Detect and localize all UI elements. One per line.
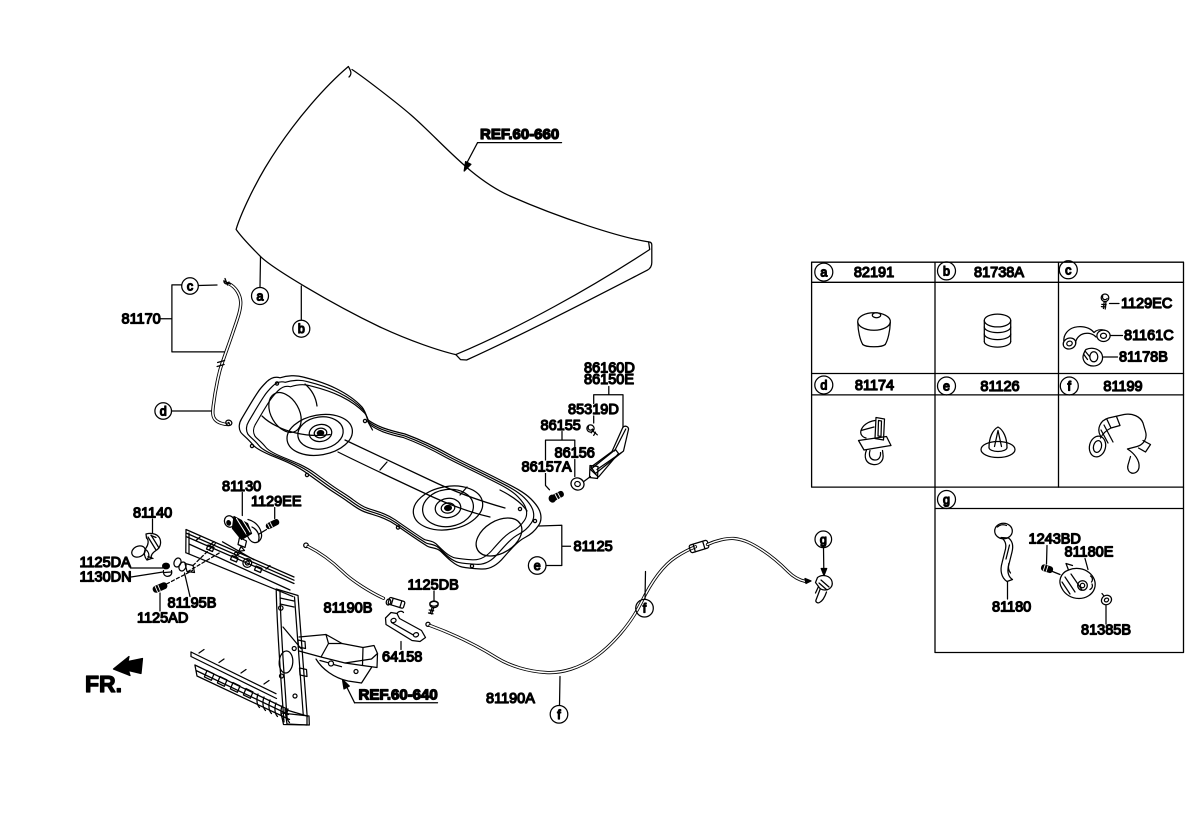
svg-text:81161C: 81161C: [1124, 328, 1174, 344]
svg-text:a: a: [257, 290, 264, 304]
svg-text:1125DB: 1125DB: [408, 578, 459, 594]
svg-text:FR.: FR.: [85, 671, 122, 697]
svg-text:81125: 81125: [574, 539, 613, 555]
svg-text:81180: 81180: [992, 600, 1031, 616]
svg-text:f: f: [1068, 380, 1072, 394]
svg-text:82191: 82191: [854, 265, 894, 281]
svg-text:81385B: 81385B: [1081, 623, 1131, 639]
svg-text:b: b: [298, 322, 305, 336]
svg-text:81199: 81199: [1103, 379, 1142, 395]
svg-text:g: g: [943, 493, 950, 507]
svg-text:1130DN: 1130DN: [80, 570, 132, 586]
svg-text:81190A: 81190A: [486, 691, 535, 707]
svg-text:81738A: 81738A: [974, 265, 1024, 281]
svg-text:64158: 64158: [382, 650, 422, 666]
svg-text:1125AD: 1125AD: [137, 611, 188, 627]
svg-text:REF.60-640: REF.60-640: [359, 687, 438, 704]
svg-text:86155: 86155: [541, 418, 581, 434]
svg-text:f: f: [557, 708, 561, 722]
svg-text:86157A: 86157A: [522, 460, 572, 476]
svg-text:a: a: [820, 266, 827, 280]
svg-text:81126: 81126: [980, 379, 1019, 395]
svg-text:81195B: 81195B: [168, 596, 217, 612]
svg-text:REF.60-660: REF.60-660: [480, 126, 559, 143]
svg-text:85319D: 85319D: [568, 402, 619, 418]
svg-text:1129EE: 1129EE: [251, 494, 302, 510]
svg-text:d: d: [820, 379, 827, 393]
svg-text:1129EC: 1129EC: [1121, 296, 1172, 312]
svg-text:e: e: [534, 559, 541, 573]
svg-text:81130: 81130: [222, 479, 261, 495]
svg-text:81174: 81174: [855, 378, 894, 394]
svg-text:81180E: 81180E: [1065, 545, 1114, 561]
svg-text:86150E: 86150E: [584, 372, 634, 388]
svg-text:81178B: 81178B: [1119, 350, 1168, 366]
svg-text:81170: 81170: [122, 312, 161, 328]
svg-text:81190B: 81190B: [324, 601, 373, 617]
svg-text:b: b: [943, 264, 950, 278]
svg-text:d: d: [160, 405, 167, 419]
svg-text:g: g: [820, 533, 827, 547]
svg-text:c: c: [187, 280, 193, 294]
svg-text:f: f: [643, 602, 647, 616]
svg-text:c: c: [1065, 263, 1071, 277]
svg-text:e: e: [943, 380, 950, 394]
